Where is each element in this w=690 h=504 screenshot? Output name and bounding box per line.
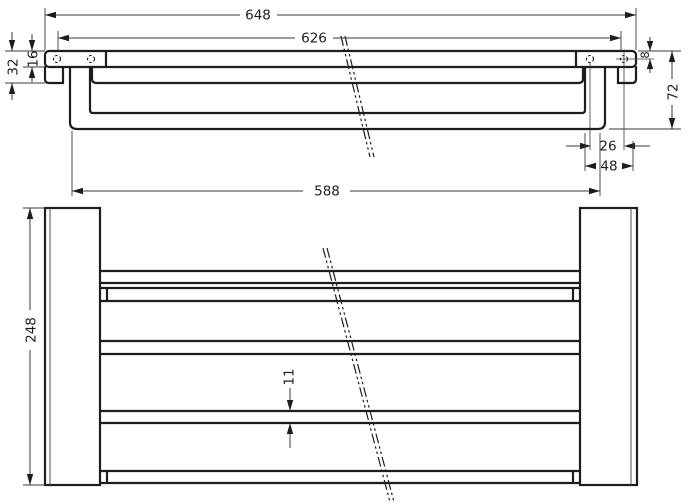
shelf-slats (100, 271, 580, 483)
technical-drawing-page: 648 626 588 (0, 0, 690, 504)
dim-label-648: 648 (245, 8, 271, 24)
shelf-bar (45, 51, 636, 67)
dim-label-8: 8 (638, 51, 652, 58)
dim-label-248: 248 (24, 317, 40, 343)
dim-label-11: 11 (282, 368, 298, 385)
mount-post-right (580, 208, 637, 485)
dimension-slat-thickness: 11 (282, 368, 298, 448)
dimension-bar-length: 588 (72, 131, 600, 200)
shelf-under-lip (92, 67, 583, 83)
dim-label-26: 26 (599, 139, 616, 155)
front-view: 648 626 588 (5, 8, 682, 200)
towel-rack-dimension-drawing: 648 626 588 (0, 0, 690, 504)
dimension-hole-spacing: 26 (566, 139, 650, 155)
dimension-total-width: 648 (45, 8, 636, 51)
bottom-view: 248 11 (23, 208, 637, 502)
dim-label-626: 626 (301, 31, 327, 47)
wall-plate-left (45, 67, 63, 83)
break-line-bottom (323, 248, 394, 502)
screw-holes (54, 51, 655, 150)
post-left-outline (45, 208, 100, 485)
post-right-outline (580, 208, 637, 485)
screw-hole (54, 56, 61, 63)
screw-hole (587, 56, 594, 63)
dim-label-48: 48 (600, 159, 617, 175)
dim-label-588: 588 (314, 184, 340, 200)
towel-bar-inner-outline (90, 67, 585, 113)
dim-label-32: 32 (6, 58, 22, 75)
screw-hole (88, 56, 95, 63)
wall-plate-right (618, 67, 636, 83)
arms-and-towel-bar (70, 67, 605, 129)
towel-bar-outer-outline (70, 67, 605, 129)
shelf-bar-outline (45, 51, 636, 67)
dimension-inner-width: 626 (58, 31, 621, 51)
dim-label-72: 72 (666, 83, 682, 100)
dimension-hole-offset: 8 (638, 37, 681, 73)
dimension-overall-drop: 72 (609, 51, 682, 129)
mount-post-left (45, 208, 100, 485)
dim-label-16: 16 (26, 50, 42, 67)
dimension-depth: 248 (23, 208, 45, 485)
break-line-front (341, 36, 374, 157)
